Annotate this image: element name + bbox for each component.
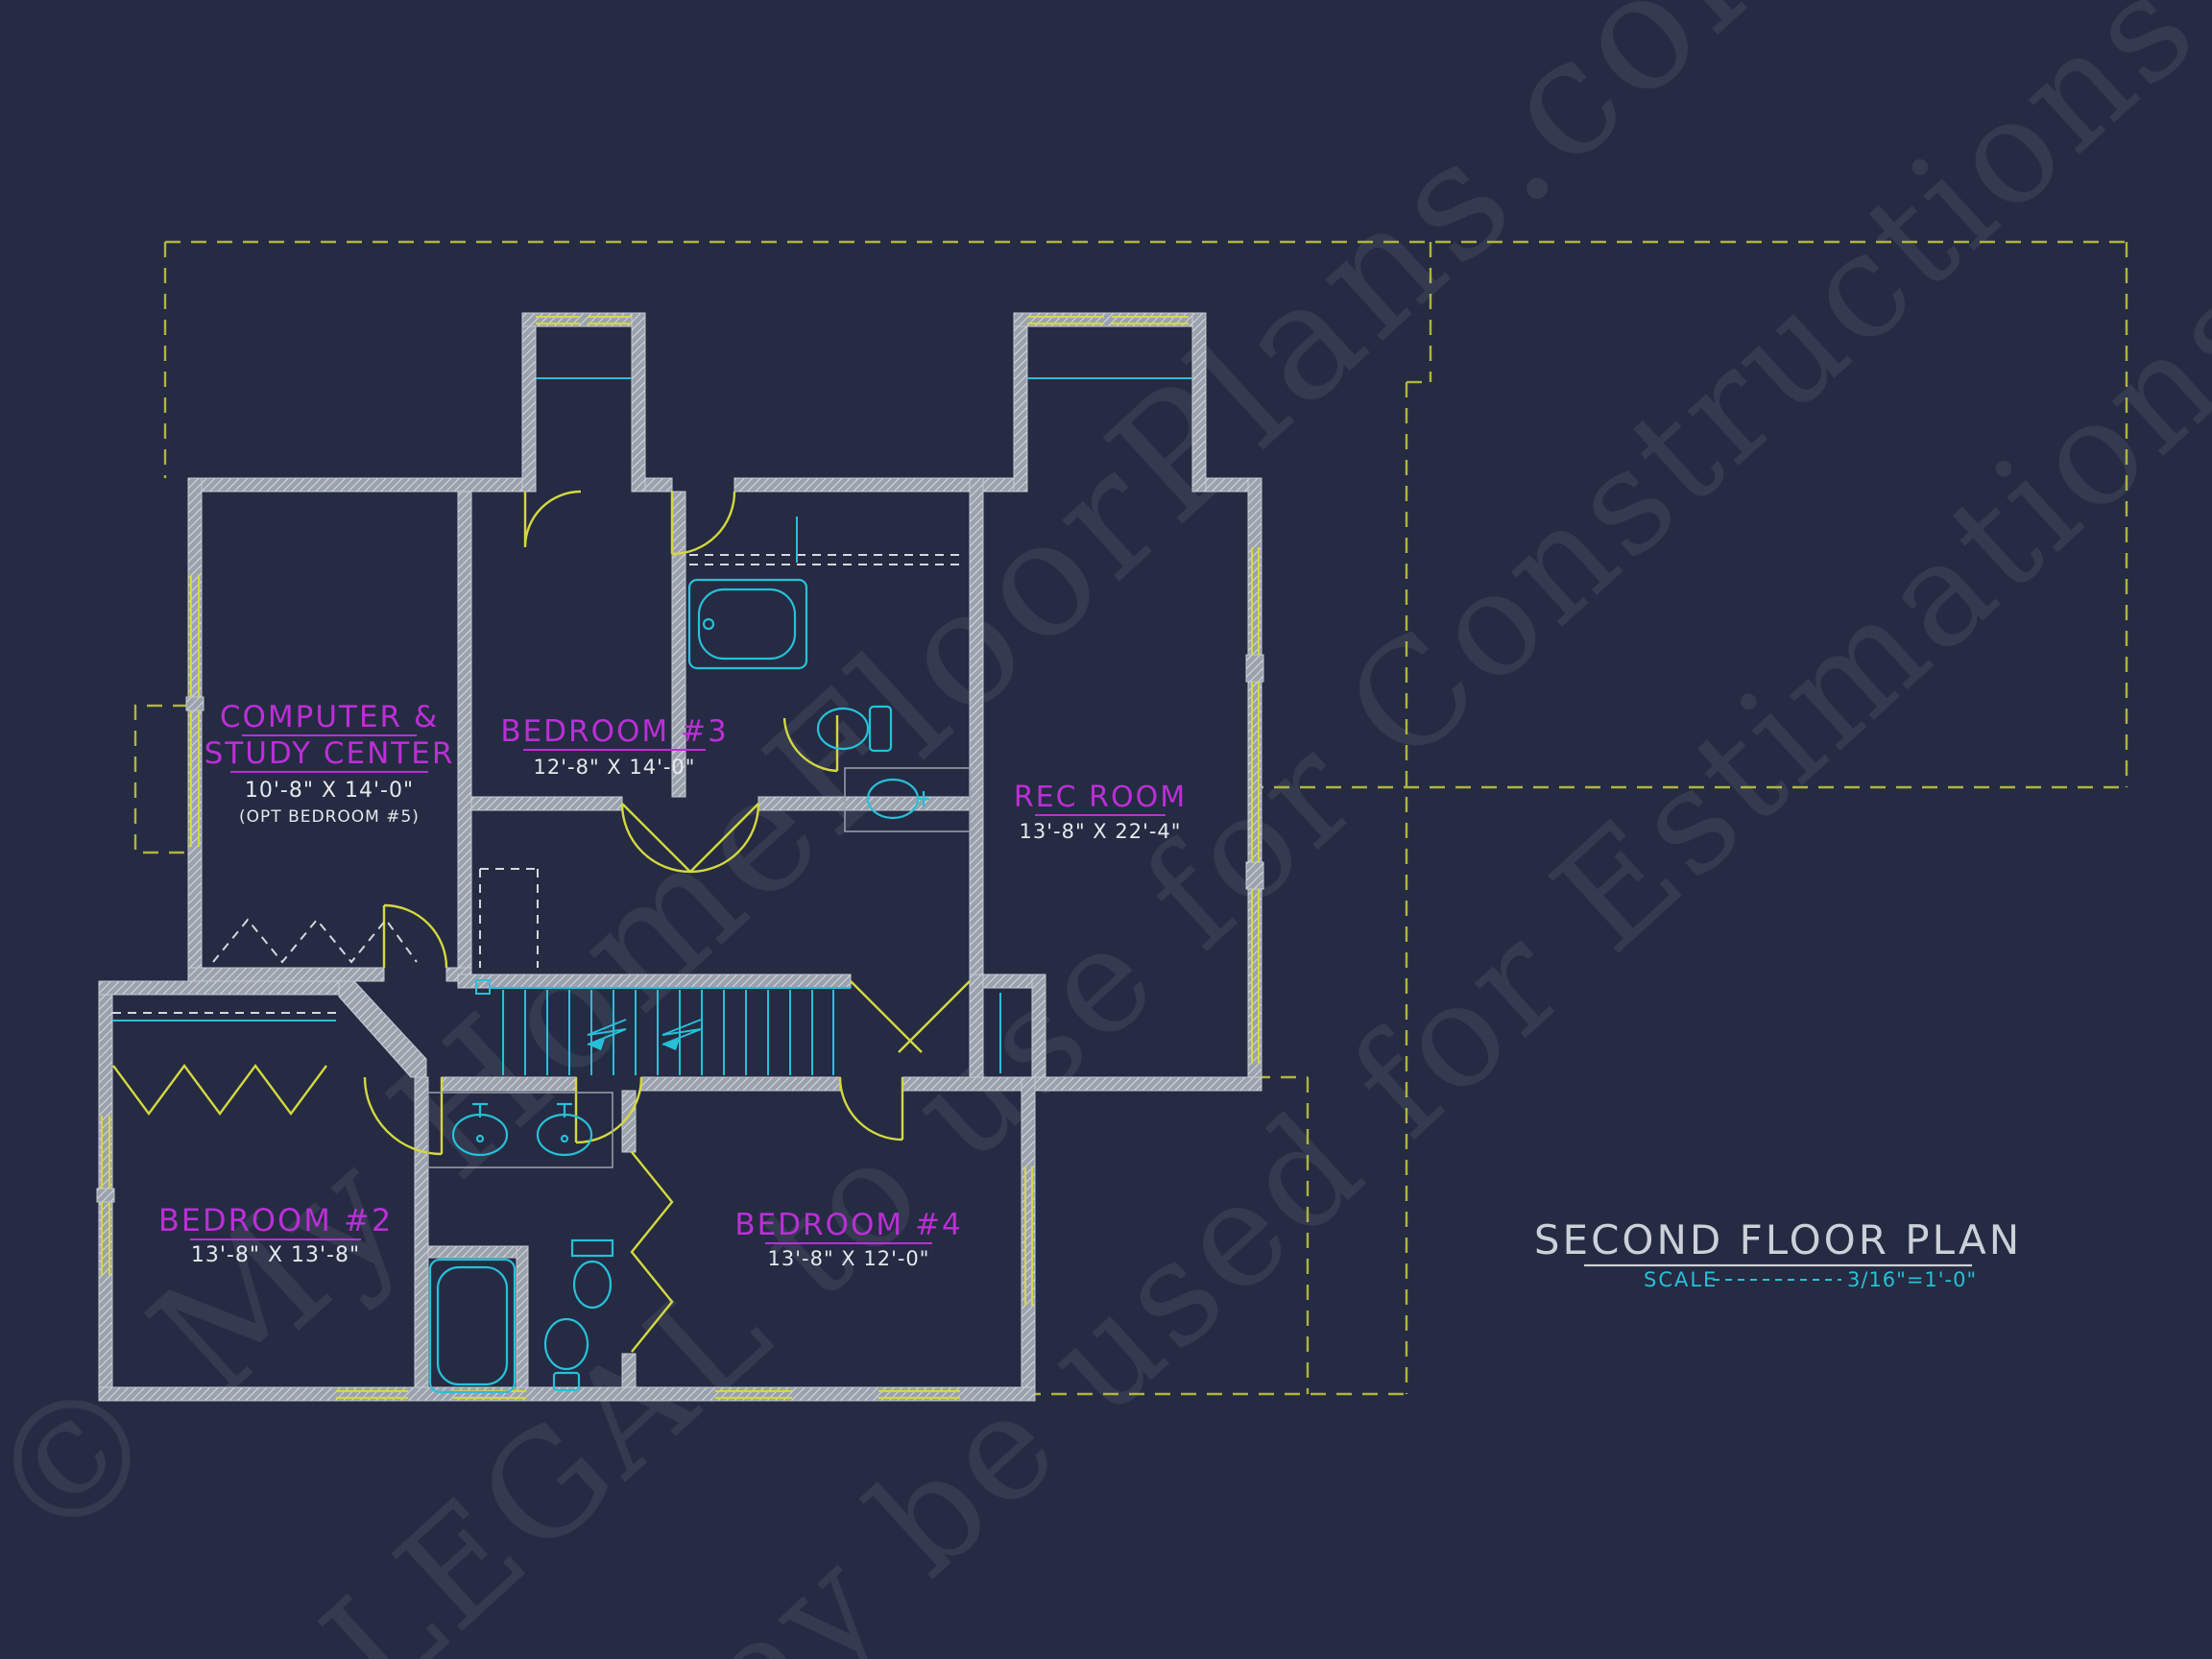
room-name: BEDROOM #4 (734, 1208, 962, 1242)
scale-value: 3/16"=1'-0" (1847, 1268, 1977, 1291)
room-note: (OPT BEDROOM #5) (239, 807, 420, 827)
room-dimensions: 10'-8" X 14'-0" (245, 779, 414, 803)
toilet-icon (572, 1240, 613, 1308)
floor-plan-page: © My HomeFloorPlans.com ILLEGAL to use f… (0, 0, 2212, 1659)
room-name: COMPUTER & (220, 700, 439, 734)
room-label-computer-study: COMPUTER & STUDY CENTER 10'-8" X 14'-0" … (204, 700, 455, 827)
room-label-bedroom2: BEDROOM #2 13'-8" X 13'-8" (158, 1202, 393, 1267)
watermark-line-2: ILLEGAL to use for Constructions (173, 0, 2212, 1659)
bathtub-icon (689, 580, 806, 668)
watermark-line-3: May be used for Estimations (560, 243, 2212, 1659)
room-label-bedroom4: BEDROOM #4 13'-8" X 12'-0" (734, 1208, 962, 1270)
room-label-bedroom3: BEDROOM #3 12'-8" X 14'-0" (500, 714, 728, 779)
room-name: BEDROOM #3 (500, 714, 728, 749)
room-dimensions: 13'-8" X 12'-0" (768, 1247, 930, 1270)
room-name: REC ROOM (1014, 781, 1187, 814)
room-dimensions: 12'-8" X 14'-0" (534, 756, 696, 779)
room-dimensions: 13'-8" X 13'-8" (191, 1243, 360, 1267)
room-name: STUDY CENTER (204, 736, 455, 771)
floor-plan-drawing: © My HomeFloorPlans.com ILLEGAL to use f… (0, 0, 2212, 1659)
room-name: BEDROOM #2 (158, 1202, 393, 1238)
plan-title: SECOND FLOOR PLAN (1534, 1216, 2022, 1263)
title-block: SECOND FLOOR PLAN SCALE 3/16"=1'-0" (1534, 1216, 2022, 1291)
room-label-rec-room: REC ROOM 13'-8" X 22'-4" (1014, 781, 1187, 843)
room-dimensions: 13'-8" X 22'-4" (1020, 820, 1182, 843)
scale-label: SCALE (1644, 1268, 1718, 1291)
bathtub-icon (430, 1260, 515, 1392)
